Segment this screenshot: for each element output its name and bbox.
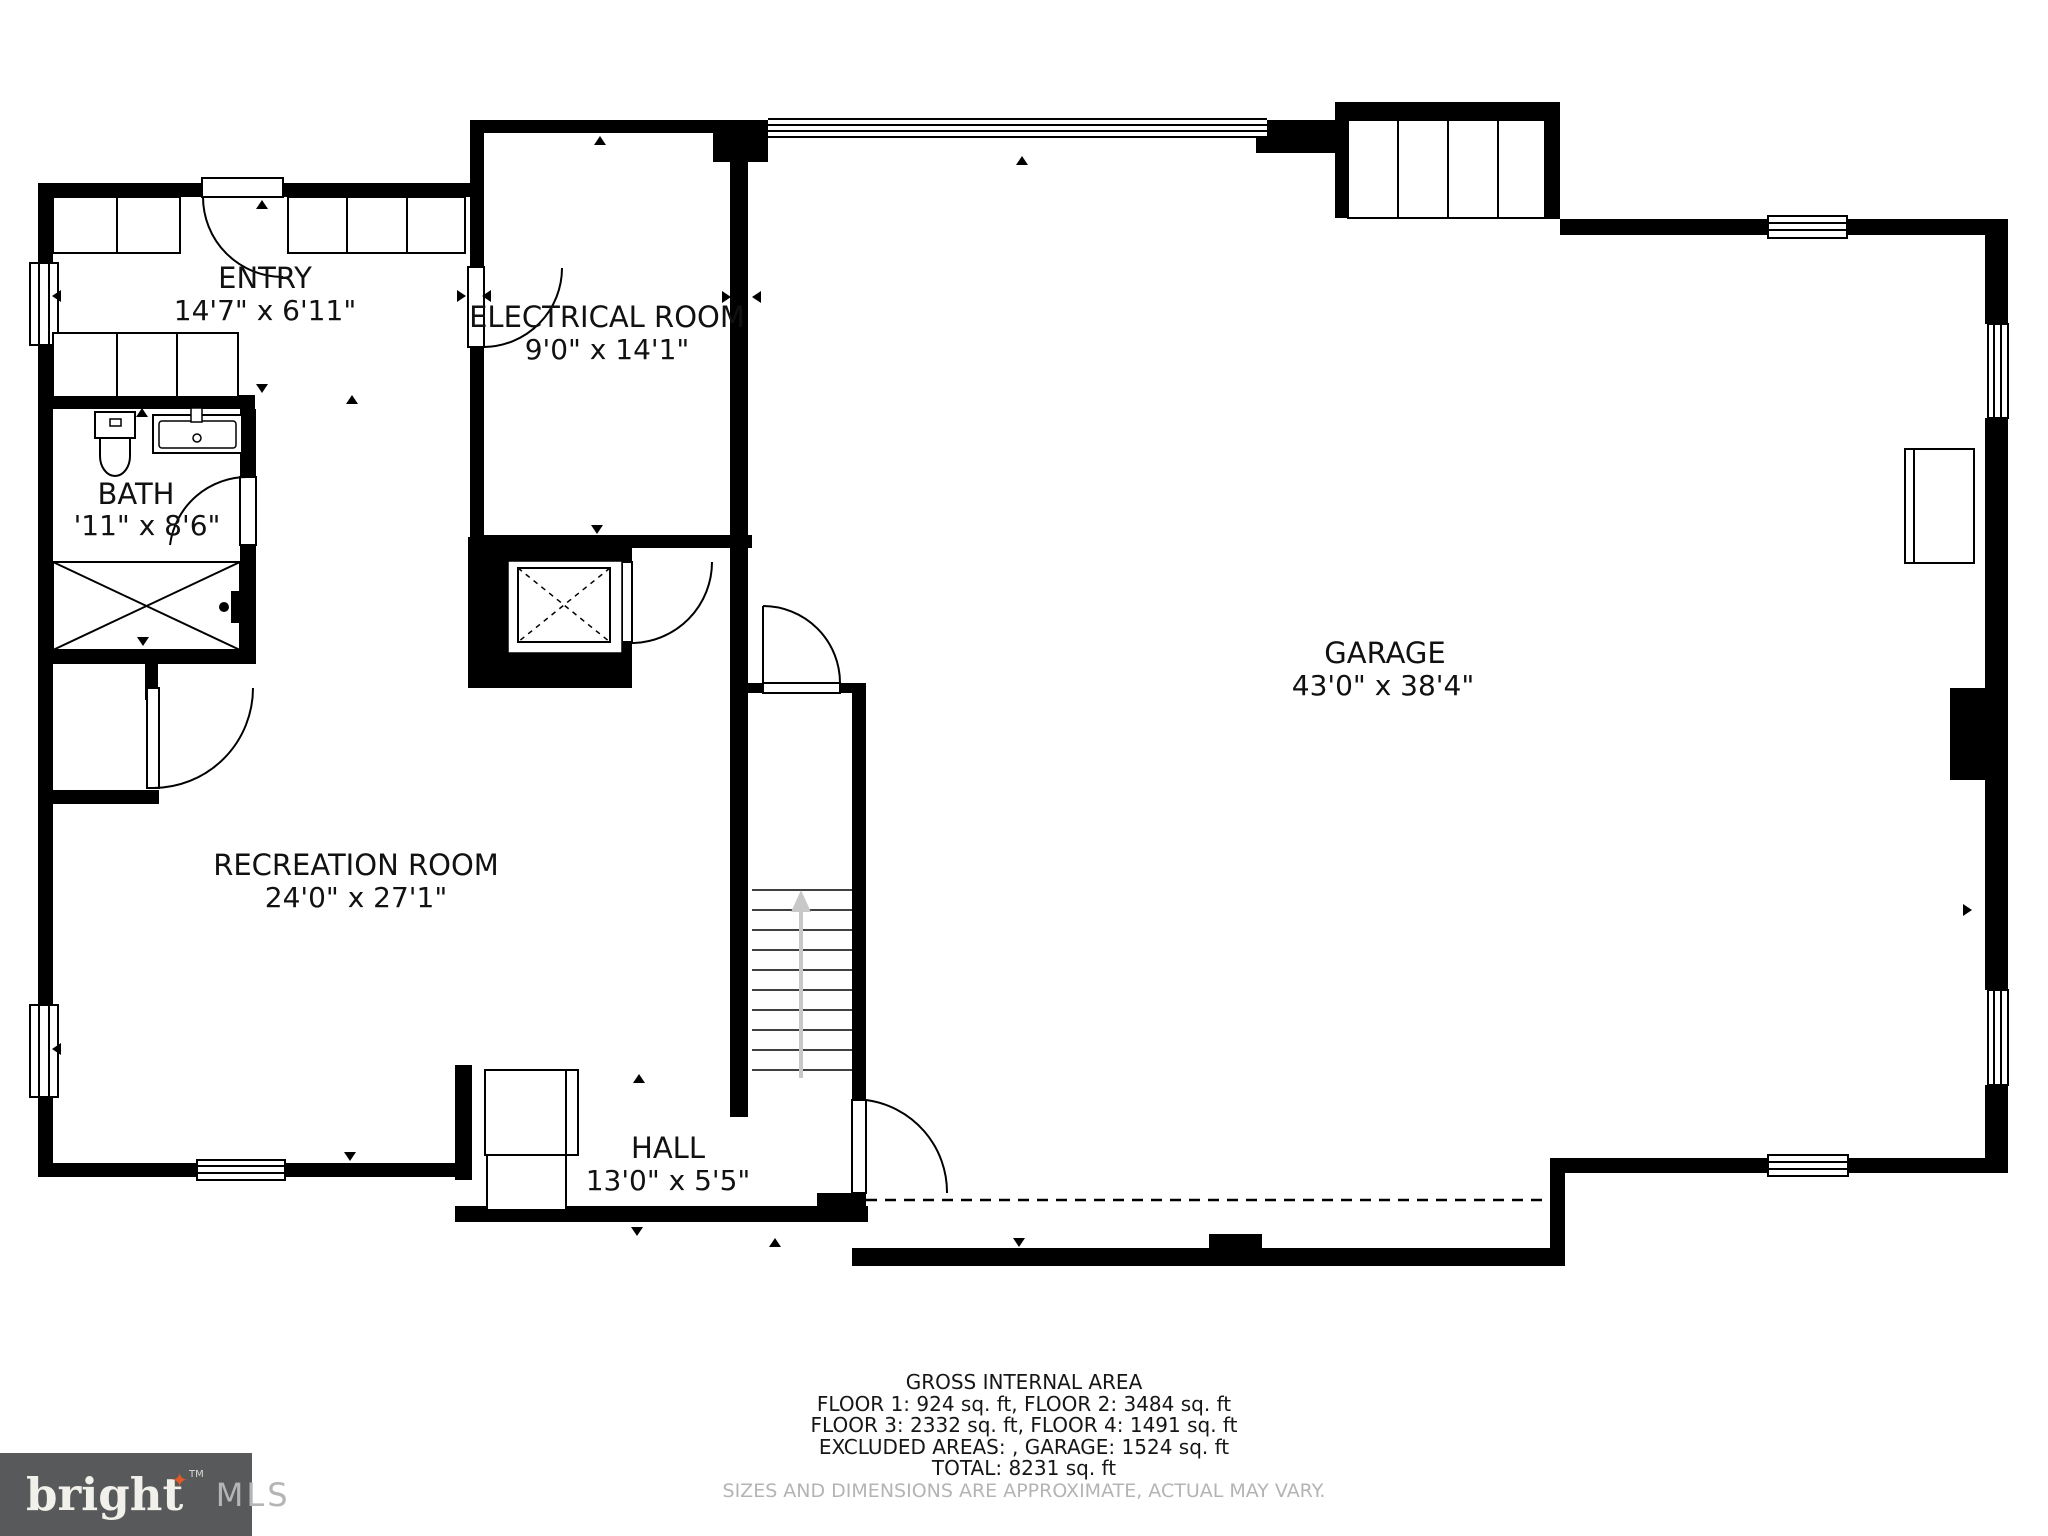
floor-plan-page: ENTRY 14'7" x 6'11" ELECTRICAL ROOM 9'0"… — [0, 0, 2048, 1536]
garage-storage-closet — [1348, 120, 1545, 218]
room-label-hall: HALL — [631, 1131, 705, 1165]
marker-up-icon — [769, 1238, 781, 1247]
window-garage-right-lower — [1988, 990, 2008, 1085]
total-area-line: TOTAL: 8231 sq. ft — [0, 1458, 2048, 1480]
marker-up-icon — [136, 408, 148, 417]
room-dims-hall: 13'0" x 5'5" — [586, 1164, 751, 1197]
marker-right-icon — [1963, 904, 1972, 916]
window-garage-right-upper — [1988, 324, 2008, 418]
excluded-areas-line: EXCLUDED AREAS: , GARAGE: 1524 sq. ft — [0, 1437, 2048, 1459]
room-label-entry: ENTRY — [218, 261, 312, 295]
marker-up-icon — [346, 395, 358, 404]
room-dims-bath: '11" x 8'6" — [74, 509, 221, 542]
room-label-garage: GARAGE — [1324, 636, 1445, 670]
window-recreation-left — [30, 1005, 58, 1097]
logo-trademark: TM — [189, 1469, 204, 1480]
stair-top-door-arc — [763, 606, 840, 683]
windows — [30, 216, 2008, 1180]
room-dims-recreation: 24'0" x 27'1" — [265, 881, 447, 914]
shower-icon — [53, 562, 240, 650]
bright-mls-logo: bright✦TM MLS — [0, 1453, 252, 1536]
logo-brand-text: bright — [26, 1468, 183, 1521]
window-garage-bottom-right — [1768, 1155, 1848, 1176]
stair-bottom-door-arc — [866, 1100, 947, 1193]
marker-down-icon — [256, 384, 268, 393]
garage-door-symbol — [768, 116, 1267, 138]
marker-down-icon — [591, 525, 603, 534]
elevator-door-arc — [632, 562, 712, 643]
marker-up-icon — [633, 1074, 645, 1083]
stair-top-door-threshold — [763, 683, 840, 693]
staircase — [752, 890, 852, 1078]
floor-areas-line-1: FLOOR 1: 924 sq. ft, FLOOR 2: 3484 sq. f… — [0, 1394, 2048, 1416]
sink-icon — [153, 408, 242, 453]
stair-bottom-door-threshold — [852, 1100, 866, 1193]
wall-segments — [38, 102, 2008, 1266]
entry-closet-top-right — [288, 197, 465, 253]
room-dims-electrical: 9'0" x 14'1" — [525, 333, 690, 366]
floor-plan-drawing: ENTRY 14'7" x 6'11" ELECTRICAL ROOM 9'0"… — [0, 0, 2048, 1536]
elevator-door-threshold — [622, 562, 632, 642]
room-dims-garage: 43'0" x 38'4" — [1292, 669, 1474, 702]
bath-door-threshold — [240, 477, 256, 545]
hall-counter — [485, 1070, 578, 1210]
entry-closet-top-left — [53, 197, 180, 253]
front-door-threshold — [202, 178, 283, 197]
toilet-icon — [95, 412, 135, 476]
marker-down-icon — [344, 1152, 356, 1161]
area-summary: GROSS INTERNAL AREA FLOOR 1: 924 sq. ft,… — [0, 1372, 2048, 1502]
window-recreation-bottom — [197, 1160, 285, 1180]
gross-internal-area-title: GROSS INTERNAL AREA — [0, 1372, 2048, 1394]
bath-to-rec-door-leaf — [147, 688, 159, 788]
room-label-electrical: ELECTRICAL ROOM — [469, 300, 745, 334]
window-garage-top-right — [1768, 216, 1847, 238]
elevator — [508, 561, 622, 653]
marker-down-icon — [1013, 1238, 1025, 1247]
garage-cabinet — [1905, 449, 1974, 563]
logo-star-icon: ✦ — [171, 1468, 188, 1492]
bath-to-rec-door-arc — [153, 688, 253, 788]
marker-down-icon — [631, 1227, 643, 1236]
room-dims-entry: 14'7" x 6'11" — [174, 294, 356, 327]
marker-left-icon — [752, 291, 761, 303]
room-label-bath: BATH — [97, 477, 174, 511]
marker-up-icon — [594, 136, 606, 145]
floor-areas-line-2: FLOOR 3: 2332 sq. ft, FLOOR 4: 1491 sq. … — [0, 1415, 2048, 1437]
marker-up-icon — [1016, 156, 1028, 165]
marker-up-icon — [256, 200, 268, 209]
closets — [53, 120, 1974, 1210]
disclaimer-text: SIZES AND DIMENSIONS ARE APPROXIMATE, AC… — [0, 1481, 2048, 1503]
entry-closet-lower — [53, 333, 238, 397]
marker-right-icon — [457, 290, 466, 302]
room-label-recreation: RECREATION ROOM — [213, 848, 499, 882]
logo-suffix-text: MLS — [216, 1476, 291, 1514]
